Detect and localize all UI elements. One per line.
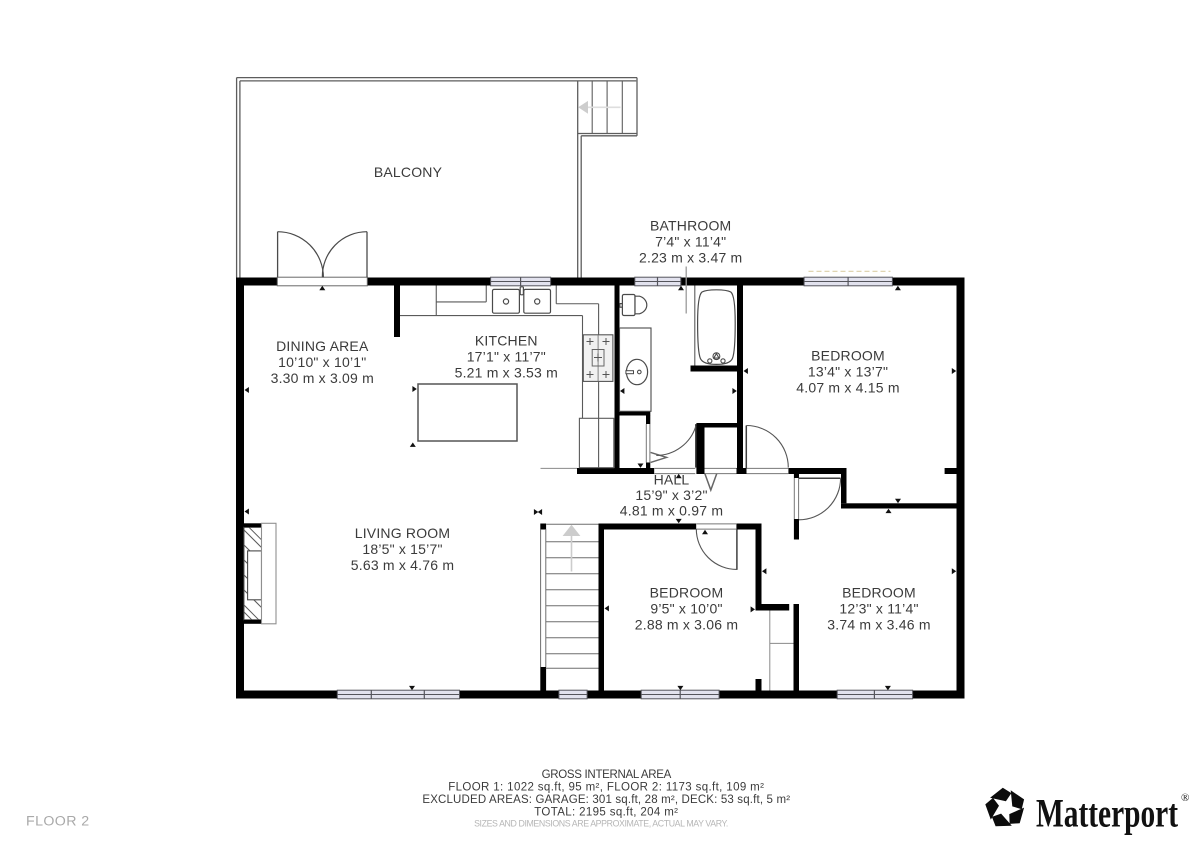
svg-text:12’3" x 11’4": 12’3" x 11’4": [839, 601, 918, 617]
svg-text:BEDROOM: BEDROOM: [650, 585, 724, 601]
svg-text:4.81 m x 0.97 m: 4.81 m x 0.97 m: [620, 502, 723, 518]
svg-text:7’4" x 11’4": 7’4" x 11’4": [655, 234, 726, 250]
svg-text:3.30 m x 3.09 m: 3.30 m x 3.09 m: [271, 370, 374, 386]
svg-text:9’5" x 10’0": 9’5" x 10’0": [650, 601, 722, 617]
svg-text:BEDROOM: BEDROOM: [811, 348, 885, 364]
svg-text:FLOOR 1: 1022 sq.ft, 95 m², FL: FLOOR 1: 1022 sq.ft, 95 m², FLOOR 2: 117…: [448, 782, 764, 794]
svg-text:BALCONY: BALCONY: [374, 164, 443, 180]
svg-text:HALL: HALL: [654, 472, 690, 488]
svg-text:KITCHEN: KITCHEN: [475, 333, 538, 349]
svg-text:®: ®: [1181, 792, 1189, 804]
svg-text:5.63 m x 4.76 m: 5.63 m x 4.76 m: [351, 557, 454, 573]
svg-text:Matterport: Matterport: [1036, 790, 1178, 835]
svg-text:15’9" x 3’2": 15’9" x 3’2": [635, 487, 707, 503]
svg-text:2.23 m x 3.47 m: 2.23 m x 3.47 m: [639, 250, 742, 266]
svg-text:5.21 m x 3.53 m: 5.21 m x 3.53 m: [455, 365, 558, 381]
svg-text:BEDROOM: BEDROOM: [842, 585, 916, 601]
svg-text:3.74 m x 3.46 m: 3.74 m x 3.46 m: [827, 617, 930, 633]
svg-text:TOTAL: 2195 sq.ft, 204 m²: TOTAL: 2195 sq.ft, 204 m²: [534, 807, 678, 819]
svg-text:LIVING ROOM: LIVING ROOM: [355, 525, 451, 541]
svg-text:18’5" x 15’7": 18’5" x 15’7": [362, 541, 442, 557]
svg-text:2.88 m x 3.06 m: 2.88 m x 3.06 m: [635, 617, 738, 633]
svg-text:GROSS INTERNAL AREA: GROSS INTERNAL AREA: [542, 769, 672, 781]
svg-text:10’10" x 10’1": 10’10" x 10’1": [278, 354, 366, 370]
svg-text:SIZES AND DIMENSIONS ARE APPRO: SIZES AND DIMENSIONS ARE APPROXIMATE, AC…: [474, 819, 728, 829]
svg-text:DINING AREA: DINING AREA: [276, 338, 369, 354]
svg-text:FLOOR 2: FLOOR 2: [26, 814, 90, 830]
svg-text:4.07 m x 4.15 m: 4.07 m x 4.15 m: [796, 380, 899, 396]
svg-text:BATHROOM: BATHROOM: [650, 218, 731, 234]
svg-text:13’4" x 13’7": 13’4" x 13’7": [808, 364, 888, 380]
svg-text:17’1" x 11’7": 17’1" x 11’7": [467, 349, 546, 365]
svg-text:EXCLUDED AREAS: GARAGE: 301 sq: EXCLUDED AREAS: GARAGE: 301 sq.ft, 28 m²…: [422, 794, 790, 806]
